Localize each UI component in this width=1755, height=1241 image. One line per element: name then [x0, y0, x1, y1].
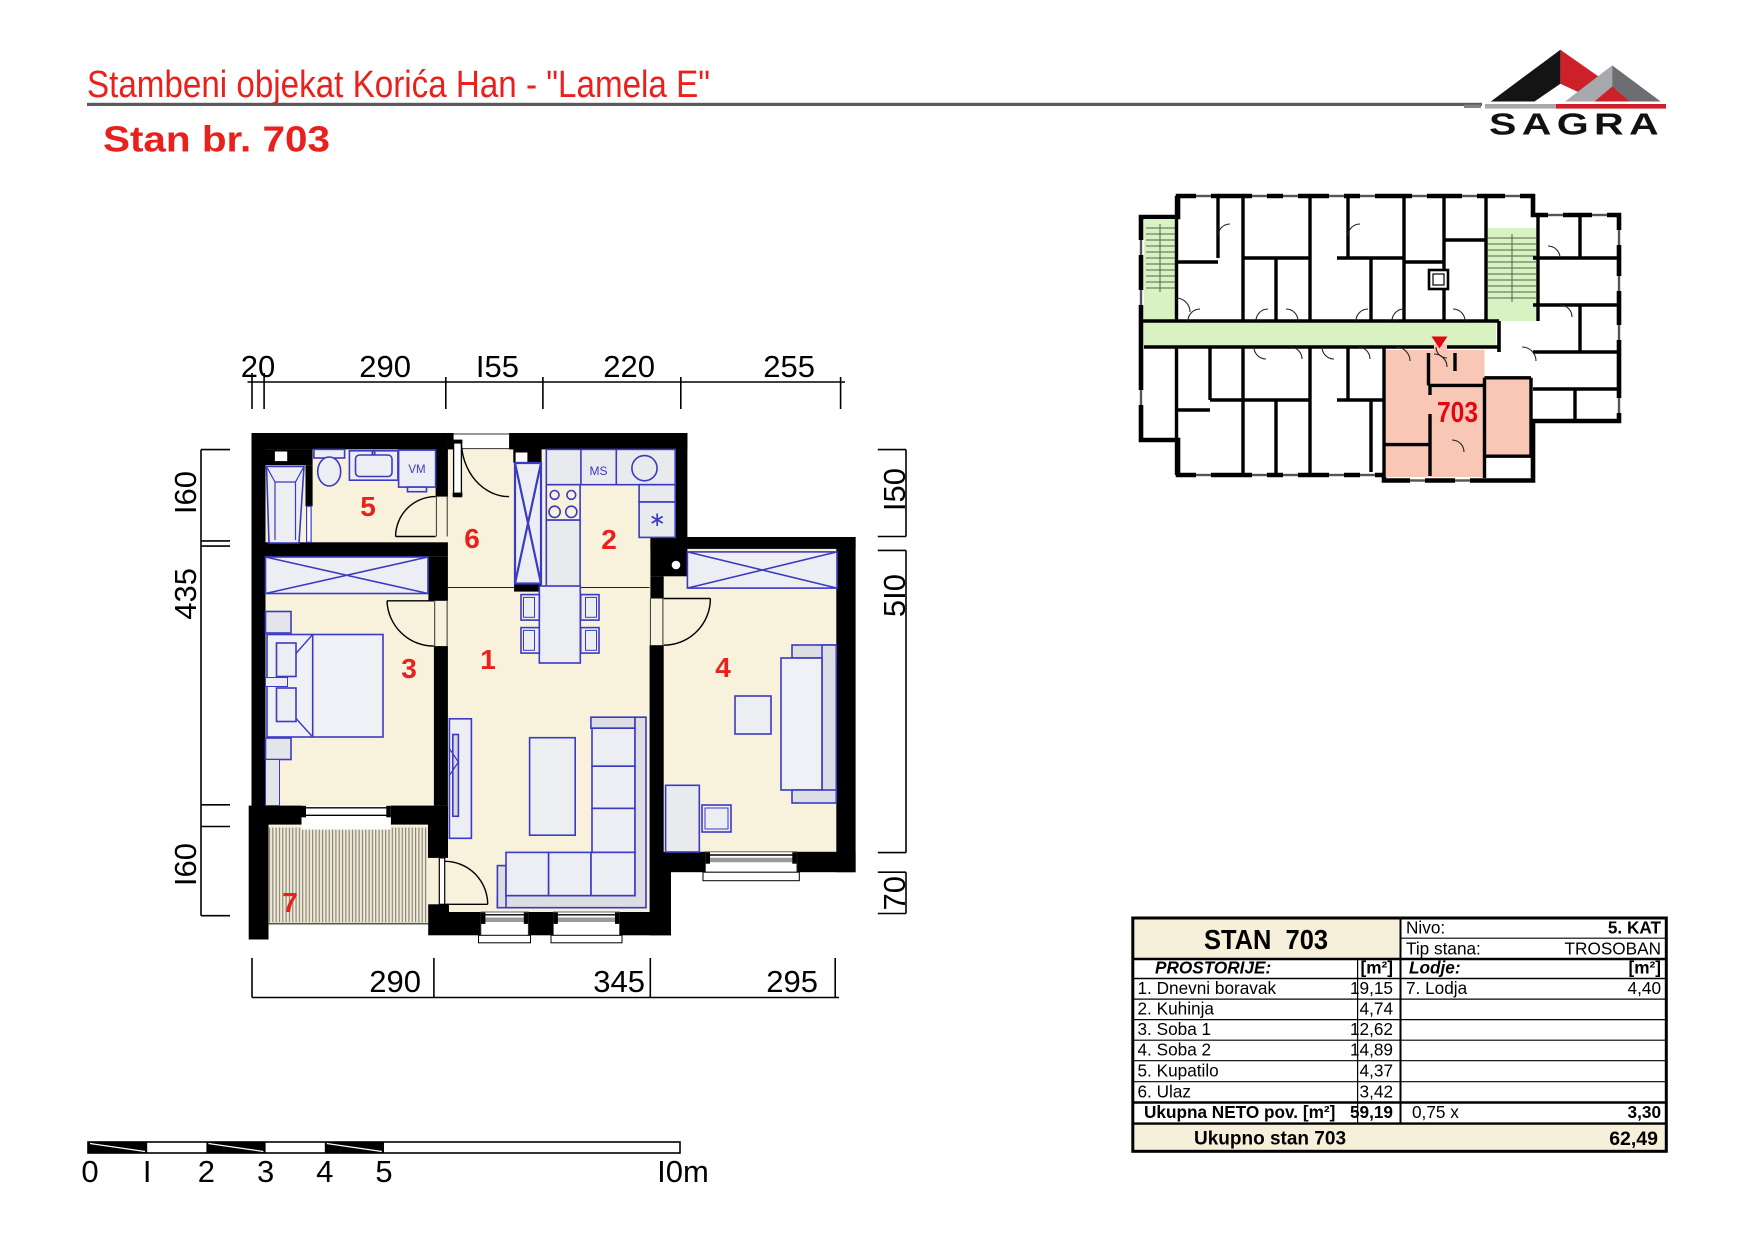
svg-text:Stan br. 703: Stan br. 703: [103, 119, 330, 160]
svg-text:PROSTORIJE:: PROSTORIJE:: [1155, 958, 1271, 978]
svg-text:I: I: [143, 1154, 152, 1189]
svg-text:I55: I55: [476, 349, 519, 384]
svg-text:3: 3: [401, 653, 417, 684]
svg-text:7. Lodja: 7. Lodja: [1406, 978, 1468, 998]
svg-text:5: 5: [375, 1154, 392, 1189]
svg-text:Stambeni objekat Korića Han -: Stambeni objekat Korića Han - "Lamela E": [87, 64, 710, 106]
svg-text:[m²]: [m²]: [1629, 958, 1661, 978]
svg-text:3. Soba 1: 3. Soba 1: [1138, 1019, 1212, 1039]
svg-text:345: 345: [593, 964, 645, 999]
svg-text:6: 6: [464, 523, 480, 554]
svg-text:3,42: 3,42: [1360, 1081, 1393, 1101]
svg-text:2: 2: [601, 524, 617, 555]
svg-text:0: 0: [81, 1154, 98, 1189]
svg-text:VM: VM: [408, 464, 425, 476]
svg-text:STAN 703: STAN 703: [1204, 924, 1328, 955]
svg-text:Tip stana:: Tip stana:: [1406, 939, 1481, 959]
svg-text:20: 20: [241, 349, 275, 384]
svg-text:255: 255: [763, 349, 815, 384]
svg-text:290: 290: [369, 964, 421, 999]
svg-text:295: 295: [766, 964, 818, 999]
svg-text:435: 435: [168, 568, 203, 620]
svg-text:2. Kuhinja: 2. Kuhinja: [1138, 999, 1215, 1019]
svg-text:62,49: 62,49: [1609, 1128, 1658, 1150]
svg-text:19,15: 19,15: [1350, 978, 1393, 998]
svg-text:12,62: 12,62: [1350, 1019, 1393, 1039]
svg-text:4,37: 4,37: [1360, 1061, 1393, 1081]
svg-text:4: 4: [715, 652, 731, 683]
svg-text:4,74: 4,74: [1360, 999, 1394, 1019]
svg-text:220: 220: [603, 349, 655, 384]
svg-text:5: 5: [360, 491, 376, 522]
svg-text:Ukupno stan 703: Ukupno stan 703: [1194, 1129, 1346, 1150]
svg-text:6. Ulaz: 6. Ulaz: [1138, 1081, 1192, 1101]
svg-text:290: 290: [359, 349, 411, 384]
svg-text:703: 703: [1437, 397, 1478, 429]
svg-text:3,30: 3,30: [1628, 1102, 1661, 1122]
svg-text:7: 7: [282, 887, 298, 918]
svg-text:1. Dnevni boravak: 1. Dnevni boravak: [1138, 978, 1277, 998]
svg-text:Lodje:: Lodje:: [1409, 958, 1461, 978]
svg-text:MS: MS: [590, 464, 608, 478]
svg-text:I60: I60: [168, 471, 203, 514]
svg-text:SAGRA: SAGRA: [1489, 107, 1664, 142]
svg-text:5I0: 5I0: [877, 574, 912, 617]
svg-text:I60: I60: [168, 843, 203, 886]
svg-text:14,89: 14,89: [1350, 1040, 1393, 1060]
svg-text:0,75 x: 0,75 x: [1412, 1102, 1459, 1122]
svg-text:[m²]: [m²]: [1361, 958, 1393, 978]
svg-text:4. Soba 2: 4. Soba 2: [1138, 1040, 1212, 1060]
svg-text:I50: I50: [877, 468, 912, 511]
svg-text:2: 2: [198, 1154, 215, 1189]
svg-text:I0m: I0m: [657, 1154, 709, 1189]
svg-text:3: 3: [257, 1154, 274, 1189]
svg-text:1: 1: [480, 644, 496, 675]
svg-text:5. KAT: 5. KAT: [1608, 918, 1662, 938]
svg-text:Nivo:: Nivo:: [1406, 918, 1445, 938]
svg-text:59,19: 59,19: [1350, 1102, 1393, 1122]
svg-text:TROSOBAN: TROSOBAN: [1565, 939, 1661, 959]
svg-text:4: 4: [316, 1154, 333, 1189]
svg-text:4,40: 4,40: [1628, 978, 1661, 998]
svg-text:5. Kupatilo: 5. Kupatilo: [1138, 1061, 1219, 1081]
svg-text:70: 70: [877, 876, 912, 910]
svg-text:Ukupna NETO pov. [m²]: Ukupna NETO pov. [m²]: [1144, 1102, 1335, 1122]
